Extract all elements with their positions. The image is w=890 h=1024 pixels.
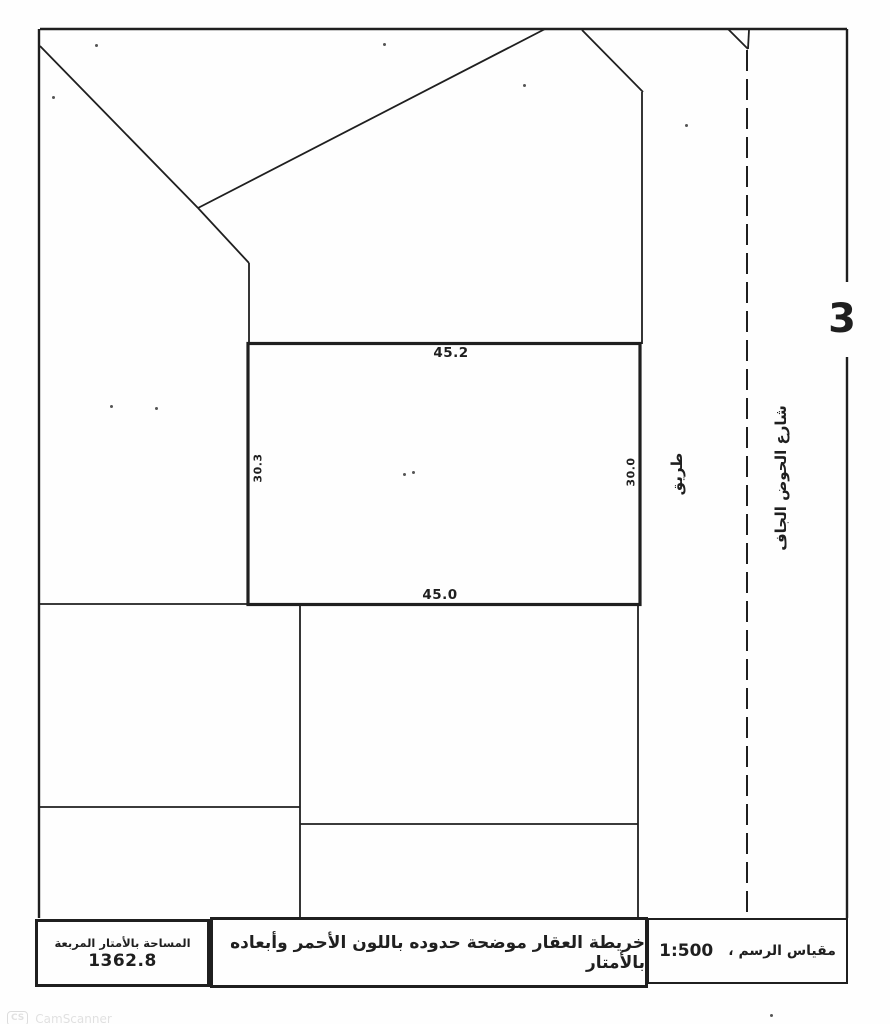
road-label: طريق — [668, 453, 686, 496]
scan-speck — [383, 43, 386, 46]
map-description-text: خريطة العقار موضحة حدوده باللون الأحمر و… — [213, 933, 645, 973]
scanner-watermark-text: CamScanner — [35, 1012, 112, 1024]
scan-speck — [523, 84, 526, 87]
scanner-watermark: CS CamScanner — [7, 1011, 112, 1024]
scan-speck — [403, 473, 406, 476]
scan-speck — [155, 407, 158, 410]
scan-speck — [95, 44, 98, 47]
area-cell: المساحة بالأمتار المربعة 1362.8 — [35, 919, 210, 987]
area-header: المساحة بالأمتار المربعة — [54, 936, 190, 950]
neighbor-boundary-diagonal-left — [40, 46, 198, 208]
scanned-cadastral-map-page: 45.2 45.0 30.3 30.0 طريق شارع الحوض الجا… — [0, 0, 890, 1024]
area-value: 1362.8 — [88, 951, 157, 971]
scale-label: مقياس الرسم ، — [728, 943, 836, 959]
scan-speck — [412, 471, 415, 474]
parcel-dimension-right: 30.0 — [625, 457, 638, 486]
scale-value: 1:500 — [659, 941, 713, 961]
block-number: 3 — [828, 296, 856, 342]
parcel-boundary — [248, 344, 640, 605]
scan-speck — [52, 96, 55, 99]
neighbor-boundary-diagonal-upper-right — [582, 30, 643, 92]
neighbor-boundary-diagonal-lower — [198, 208, 249, 263]
road-line-top-notch-vertical — [748, 30, 749, 49]
parcel-dimension-top: 45.2 — [433, 345, 468, 361]
scanner-watermark-badge-icon: CS — [7, 1011, 28, 1024]
parcel-dimension-bottom: 45.0 — [422, 587, 457, 603]
map-linework — [0, 0, 890, 1024]
map-description-cell: خريطة العقار موضحة حدوده باللون الأحمر و… — [210, 917, 648, 988]
neighbor-boundary-diagonal-right — [198, 29, 545, 208]
scan-speck — [110, 405, 113, 408]
scan-speck — [685, 124, 688, 127]
street-name-label: شارع الحوض الجاف — [772, 405, 790, 551]
road-line-top-notch-diagonal — [728, 29, 748, 49]
scan-speck — [770, 1014, 773, 1017]
scale-cell: 1:500 مقياس الرسم ، — [647, 918, 848, 984]
parcel-dimension-left: 30.3 — [252, 453, 265, 482]
